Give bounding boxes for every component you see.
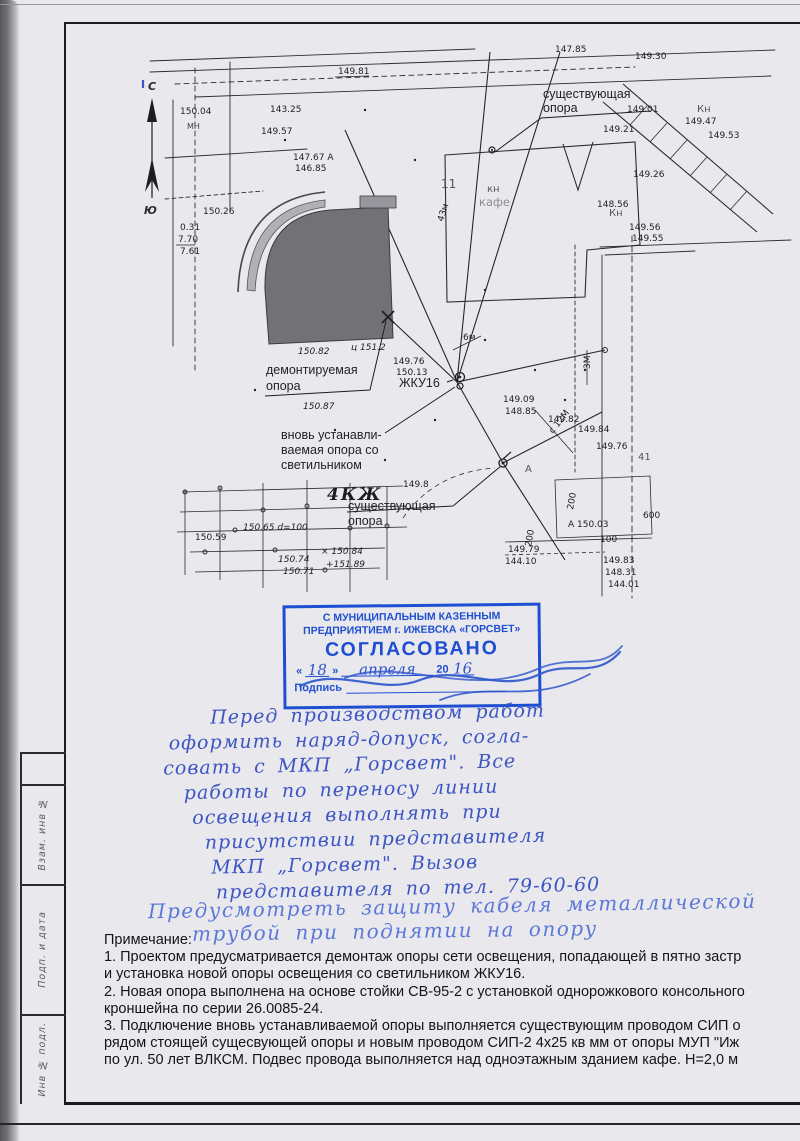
stamp-signature-label: Подпись xyxy=(294,682,342,694)
svg-text:149.09: 149.09 xyxy=(503,395,535,405)
svg-text:опора: опора xyxy=(348,514,383,528)
svg-text:149.21: 149.21 xyxy=(603,125,635,135)
svg-text:149.8: 149.8 xyxy=(403,480,429,490)
svg-text:150.82: 150.82 xyxy=(298,347,330,357)
svg-text:+151.89: +151.89 xyxy=(326,560,365,570)
svg-text:149.76: 149.76 xyxy=(596,442,628,452)
svg-text:150.59: 150.59 xyxy=(195,533,227,543)
svg-text:144.10: 144.10 xyxy=(505,557,537,567)
survey-points xyxy=(183,348,608,573)
svg-text:148.85: 148.85 xyxy=(505,407,537,417)
svg-text:150.87: 150.87 xyxy=(303,402,335,412)
note-line: 3. Подключение вновь устанавливаемой опо… xyxy=(104,1018,800,1035)
svg-text:150.74: 150.74 xyxy=(278,555,310,565)
frame-bottom-line xyxy=(64,1102,800,1105)
svg-text:150.26: 150.26 xyxy=(203,207,235,217)
label-kn-right: Кн xyxy=(609,208,623,219)
label-zhku16: ЖКУ16 xyxy=(399,376,440,390)
notes-title: Примечание: xyxy=(104,932,800,949)
label-existing-pole-bottom: существующая xyxy=(348,499,436,513)
svg-text:149.57: 149.57 xyxy=(261,127,293,137)
svg-text:150.71: 150.71 xyxy=(283,567,315,577)
side-cell-podp: Подп. и дата xyxy=(22,884,62,1014)
svg-text:147.85: 147.85 xyxy=(555,45,587,55)
svg-text:149.83: 149.83 xyxy=(603,556,635,566)
stamp-month-handwritten: апреля xyxy=(341,663,433,677)
svg-text:600: 600 xyxy=(643,511,660,521)
note-line: рядом стоящей сущесвующей опоры и новым … xyxy=(104,1035,800,1052)
stamp-org-line2: ПРЕДПРИЯТИЕМ г. ИЖЕВСКА «ГОРСВЕТ» xyxy=(286,623,538,639)
label-cafe: кафе xyxy=(479,195,510,209)
svg-text:150.04: 150.04 xyxy=(180,107,212,117)
label-kn: кн xyxy=(487,184,500,195)
plan-linework xyxy=(150,49,791,598)
svg-text:149.47: 149.47 xyxy=(685,117,717,127)
compass-arrow-head xyxy=(147,98,157,122)
svg-text:ваемая опора со: ваемая опора со xyxy=(281,443,379,457)
stamp-date-row: «18» апреля 2016 xyxy=(296,662,538,678)
svg-text:7.61: 7.61 xyxy=(180,247,200,257)
svg-text:149.56: 149.56 xyxy=(629,223,661,233)
compass-south-label: Ю xyxy=(144,204,157,217)
side-cell-divider xyxy=(20,752,66,754)
svg-text:146.85: 146.85 xyxy=(295,164,327,174)
svg-text:опора: опора xyxy=(543,101,578,115)
side-cell-vzam: Взам. инв № xyxy=(22,784,62,884)
svg-text:150.65 d=100: 150.65 d=100 xyxy=(243,523,308,533)
svg-text:А: А xyxy=(525,464,532,475)
compass-north-label: С xyxy=(148,80,156,93)
svg-text:143.25: 143.25 xyxy=(270,105,302,115)
note-line: и установка новой опоры освещения со све… xyxy=(104,966,800,983)
svg-text:МН: МН xyxy=(187,122,200,131)
svg-text:149.30: 149.30 xyxy=(635,52,667,62)
note-line: 1. Проектом предусматривается демонтаж о… xyxy=(104,949,800,966)
svg-text:ц 151.2: ц 151.2 xyxy=(351,343,386,353)
site-plan-map: С Ю 149.81 147.85 149.30 143.25 150.04 М… xyxy=(135,40,800,615)
svg-text:149.81: 149.81 xyxy=(338,67,370,77)
demolished-building xyxy=(238,192,396,344)
page-top-line xyxy=(0,4,800,5)
approval-stamp: С МУНИЦИПАЛЬНЫМ КАЗЕННЫМ ПРЕДПРИЯТИЕМ г.… xyxy=(282,603,541,710)
svg-text:149.84: 149.84 xyxy=(578,425,610,435)
frame-bottom-outer-line xyxy=(0,1123,800,1125)
svg-text:149.53: 149.53 xyxy=(708,131,740,141)
svg-text:149.55: 149.55 xyxy=(632,234,664,244)
scanned-paper-edge xyxy=(0,0,20,1141)
stamp-year-handwritten: 16 xyxy=(452,662,474,675)
label-house-11: 11 xyxy=(441,177,456,191)
stamp-signature-line xyxy=(346,679,506,694)
label-dismantled-pole: демонтируемая xyxy=(266,363,358,377)
svg-text:× 150.84: × 150.84 xyxy=(321,547,363,557)
svg-text:6м: 6м xyxy=(463,333,476,343)
label-new-pole: вновь устанавли- xyxy=(281,428,382,442)
svg-text:147.67 А: 147.67 А xyxy=(293,153,334,163)
note-line: по ул. 50 лет ВЛКСМ. Подвес провода выпо… xyxy=(104,1052,800,1069)
svg-text:200: 200 xyxy=(566,492,579,511)
svg-text:А 150.03: А 150.03 xyxy=(568,520,609,530)
svg-text:149.01: 149.01 xyxy=(627,105,659,115)
handwritten-remarks: Перед производством работ оформить наряд… xyxy=(150,695,714,907)
svg-text:0.31: 0.31 xyxy=(180,223,200,233)
frame-vertical-line xyxy=(64,22,66,1104)
note-line: 2. Новая опора выполнена на основе стойк… xyxy=(104,984,800,1001)
note-line: кроншейна по серии 26.0085-24. xyxy=(104,1001,800,1018)
svg-text:светильником: светильником xyxy=(281,458,362,472)
svg-text:100: 100 xyxy=(600,535,617,545)
label-kn-top-right: Кн xyxy=(697,104,711,115)
svg-text:149.26: 149.26 xyxy=(633,170,665,180)
notes-block: Примечание: 1. Проектом предусматриваетс… xyxy=(104,932,800,1070)
svg-text:148.31: 148.31 xyxy=(605,568,637,578)
frame-top-line xyxy=(64,22,800,24)
label-existing-pole-top: существующая xyxy=(543,87,631,101)
compass: С Ю xyxy=(143,80,159,217)
svg-text:опора: опора xyxy=(266,379,301,393)
stamp-signature-row: Подпись xyxy=(294,679,538,695)
side-cell-inv: Инв № подл. xyxy=(22,1014,62,1104)
elevation-annotations: 149.81 147.85 149.30 143.25 150.04 МН 14… xyxy=(176,45,740,590)
svg-text:149.76: 149.76 xyxy=(393,357,425,367)
svg-text:3М: 3М xyxy=(583,356,593,370)
svg-text:144.01: 144.01 xyxy=(608,580,640,590)
svg-text:43м: 43м xyxy=(436,202,451,222)
stamp-approved-text: СОГЛАСОВАНО xyxy=(286,637,538,663)
svg-text:41: 41 xyxy=(638,452,651,463)
stamp-day-handwritten: 18 xyxy=(305,664,329,677)
svg-text:7.70: 7.70 xyxy=(178,235,198,245)
